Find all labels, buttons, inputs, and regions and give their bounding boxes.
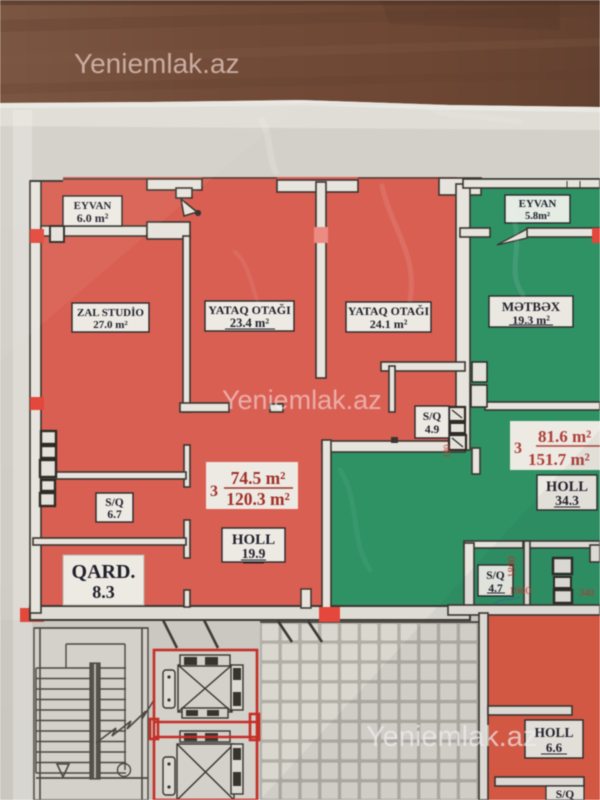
svg-text:Yeniemlak.az: Yeniemlak.az [74,48,240,79]
